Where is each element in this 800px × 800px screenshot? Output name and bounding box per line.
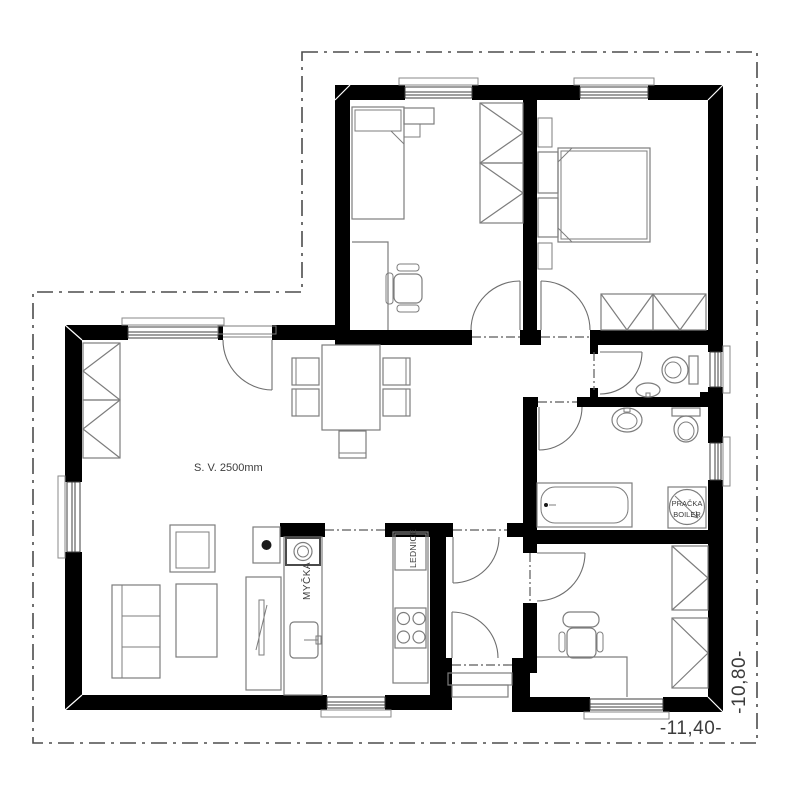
sofa-icon — [112, 585, 160, 678]
window-kitchen-icon — [321, 697, 391, 717]
wardrobe-office-icon — [672, 546, 708, 688]
desk-chair-icon — [386, 264, 422, 312]
bedroom2-door-icon — [541, 281, 590, 330]
window-office-icon — [584, 699, 669, 719]
wardrobe-bedroom2-icon — [601, 294, 706, 330]
living-room-furniture — [83, 343, 410, 690]
wc-sink-icon — [636, 383, 660, 397]
bathtub-icon — [537, 483, 632, 527]
bedroom2-furniture — [538, 118, 706, 330]
nightstand-icon — [538, 198, 558, 237]
desk-icon — [352, 242, 388, 330]
bathroom-sink-icon — [612, 408, 642, 432]
kitchen-sink-icon — [290, 622, 321, 658]
dimension-width-label: -11,40- — [660, 718, 722, 739]
bedroom1-furniture — [352, 103, 523, 330]
wardrobe-living-icon — [83, 343, 120, 458]
toilet-icon — [662, 356, 698, 384]
dining-chair — [292, 389, 319, 416]
window-bedroom1-icon — [399, 78, 478, 98]
ceiling-height-label: S. V. 2500mm — [194, 462, 263, 474]
dimension-depth-label: -10,80- — [729, 650, 750, 714]
tv-cabinet-icon — [246, 577, 281, 690]
coffee-table-icon — [176, 584, 217, 657]
nightstand-icon — [538, 152, 558, 193]
office-door-icon — [537, 553, 585, 601]
fridge-label: LEDNICE — [408, 529, 418, 568]
side-unit-icon — [253, 527, 280, 563]
kitchen-round-sink-icon — [286, 538, 320, 565]
window-bedroom2-icon — [574, 78, 654, 98]
double-bed-icon — [558, 148, 650, 242]
armchair-icon — [170, 525, 215, 572]
washer-label-line1: PRAČKA — [672, 499, 703, 508]
kitchen-fixtures — [284, 532, 428, 695]
office-desk-icon — [537, 657, 627, 697]
wardrobe-bedroom1-icon — [480, 103, 523, 223]
dining-table-icon — [322, 345, 380, 430]
bedside-shelf-icon — [404, 108, 434, 137]
washer-label-line2: BOILER — [673, 510, 701, 519]
opening-thresholds — [325, 337, 594, 665]
wc-door-icon — [600, 352, 642, 394]
window-bathroom-icon — [710, 437, 730, 486]
window-living-left-icon — [58, 476, 80, 558]
rear-entry-steps-icon — [448, 673, 512, 697]
rear-entry-door-icon — [452, 612, 498, 658]
dining-chair — [292, 358, 319, 385]
office-furniture — [537, 546, 708, 697]
walls — [65, 85, 723, 712]
bathroom-door-icon — [539, 407, 582, 450]
window-living-top-icon — [122, 318, 224, 338]
dining-chair — [339, 431, 366, 458]
entry-door-icon — [218, 326, 276, 390]
office-chair-icon — [559, 612, 603, 658]
wc-fixtures — [636, 356, 698, 397]
window-wc-icon — [710, 346, 730, 393]
floor-plan-svg: S. V. 2500mm MYČKA LEDNICE PRAČKA BOILER… — [0, 0, 800, 800]
dining-chair — [383, 358, 410, 385]
dining-chair — [383, 389, 410, 416]
bathroom-toilet-icon — [672, 408, 700, 442]
floor-plan-page: S. V. 2500mm MYČKA LEDNICE PRAČKA BOILER… — [0, 0, 800, 800]
stove-icon — [395, 608, 426, 648]
bedroom1-door-icon — [471, 281, 520, 330]
hall-corridor-door-icon — [453, 537, 499, 583]
dishwasher-label: MYČKA — [300, 562, 313, 600]
single-bed-icon — [352, 107, 404, 219]
